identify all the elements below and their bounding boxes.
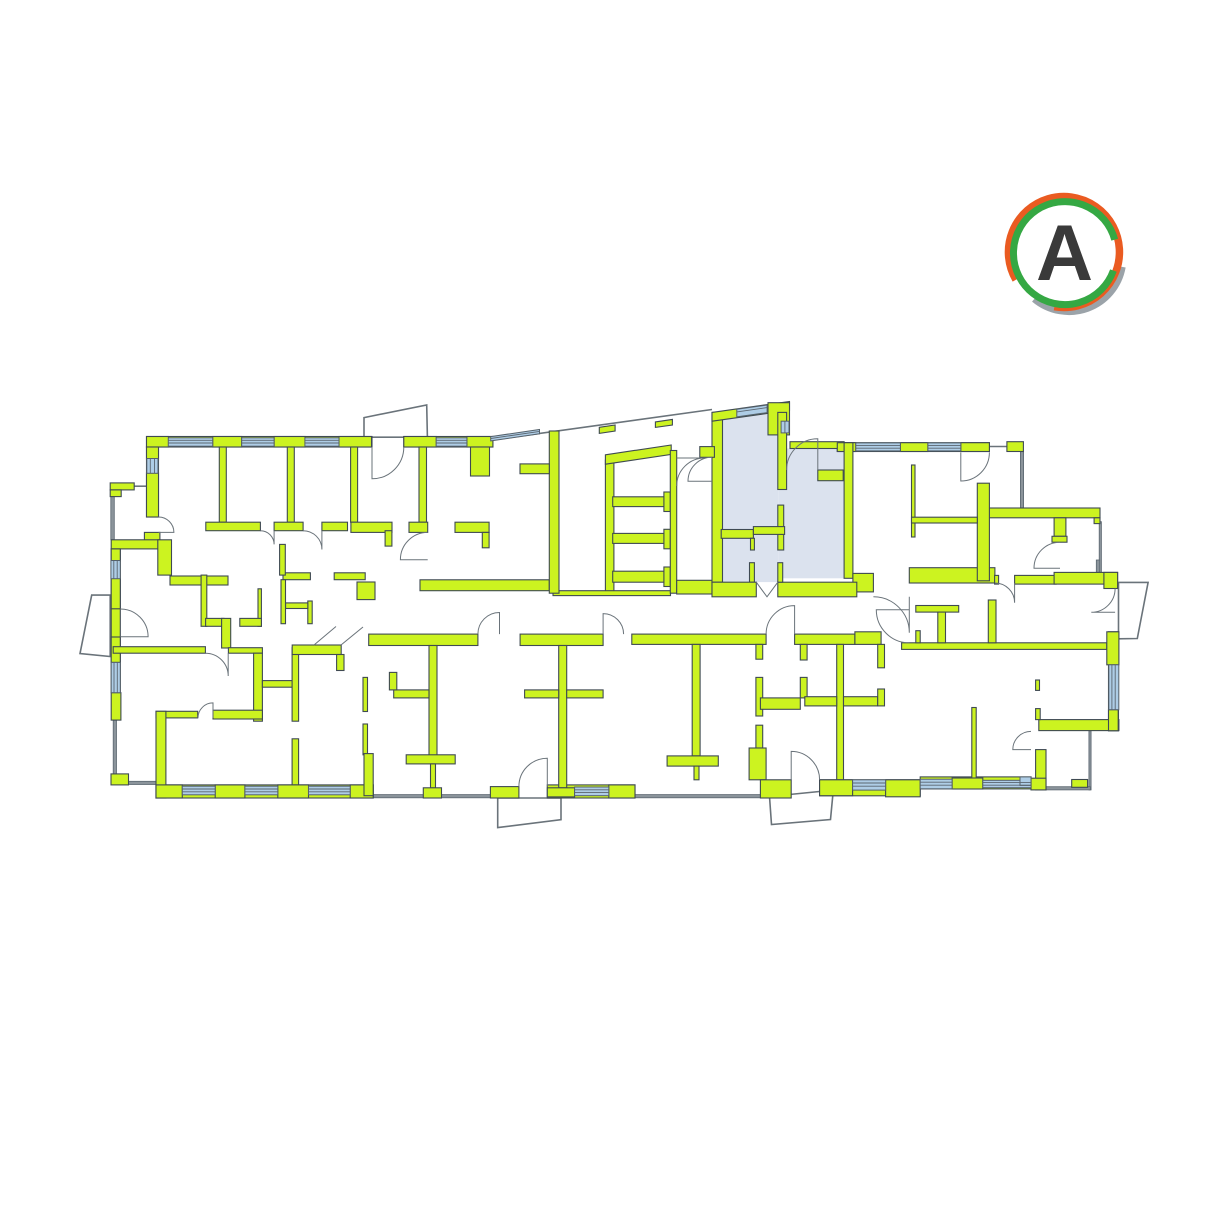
svg-text:A: A	[1036, 208, 1093, 297]
